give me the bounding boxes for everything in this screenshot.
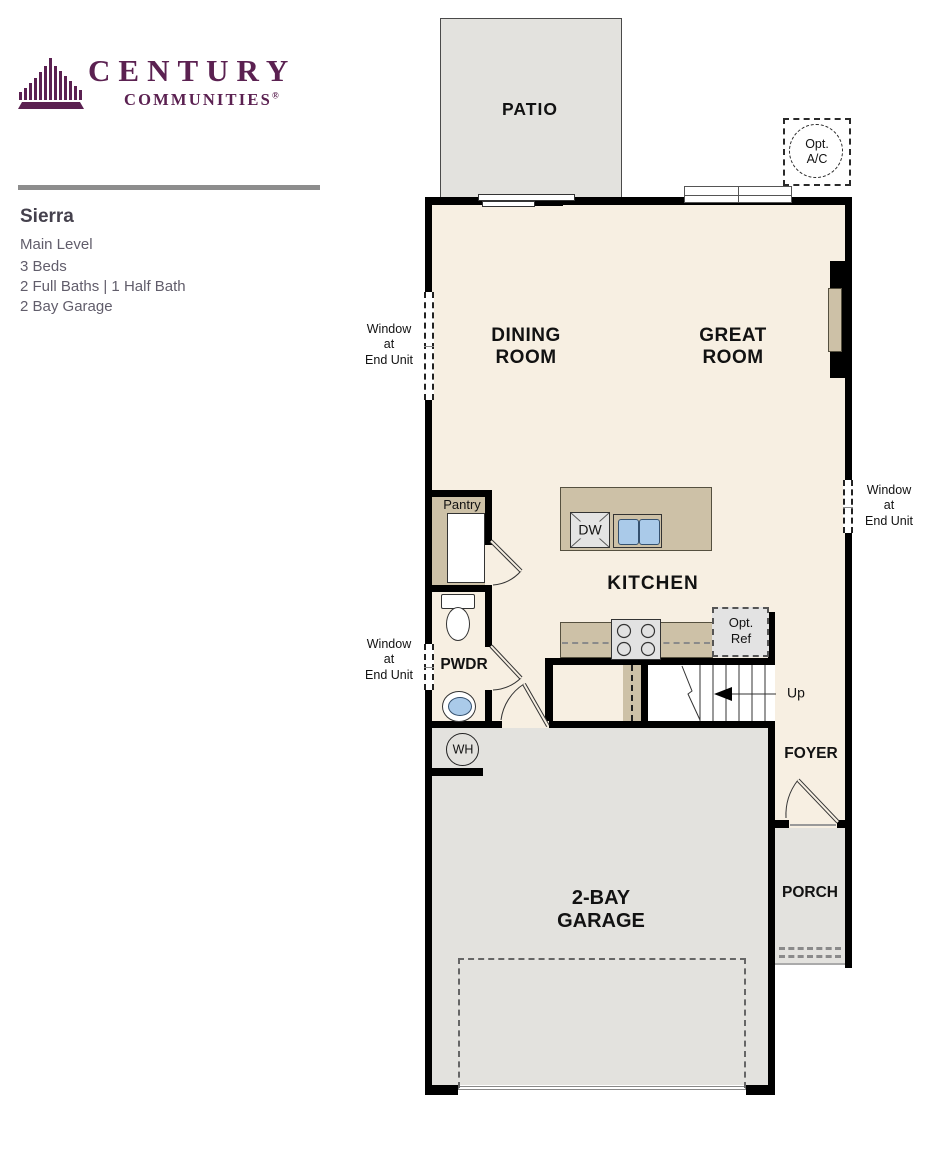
room-label-kitchen: KITCHEN: [607, 573, 698, 595]
porch-steps: [779, 955, 841, 958]
room-label-pwdr: PWDR: [440, 656, 487, 674]
kitchen-sink: [613, 514, 662, 548]
sink-basin: [639, 519, 660, 545]
fireplace-niche: [828, 288, 842, 352]
wall: [425, 768, 483, 776]
porch-edge: [775, 963, 845, 965]
stove: [611, 619, 661, 660]
plan-info-garage: 2 Bay Garage: [20, 298, 113, 315]
pantry-door: [487, 539, 531, 591]
opt-ac-label: Opt. A/C: [805, 137, 829, 168]
sliding-door: [478, 194, 575, 201]
up-label: Up: [787, 684, 805, 701]
plan-info-baths: 2 Full Baths | 1 Half Bath: [20, 278, 186, 295]
window-marker-end-unit: [843, 480, 853, 533]
stairs: [648, 665, 778, 721]
opt-ref-label: Opt. Ref: [729, 615, 754, 647]
pantry-shelves: [447, 513, 485, 583]
wall: [768, 728, 775, 1095]
plan-title: Sierra: [20, 206, 74, 228]
room-label-patio: PATIO: [502, 99, 558, 119]
logo-icon: [18, 56, 84, 112]
window-note: Window at End Unit: [365, 637, 413, 683]
room-label-great: GREAT ROOM: [699, 325, 767, 369]
garage-entry-door: [498, 678, 554, 728]
plan-info-level: Main Level: [20, 236, 93, 253]
room-label-foyer: FOYER: [784, 745, 837, 763]
wall: [553, 658, 775, 665]
dishwasher: DW: [570, 512, 610, 548]
divider: [18, 185, 320, 190]
sliding-door-track: [535, 203, 563, 206]
driveway-outline: [458, 958, 746, 1088]
window-marker-end-unit: [424, 292, 434, 400]
room-label-pantry: Pantry: [443, 497, 481, 513]
floorplan-sheet: CENTURY COMMUNITIES® Sierra Main Level 3…: [0, 0, 943, 1150]
century-communities-logo: CENTURY COMMUNITIES®: [0, 0, 340, 130]
window-note: Window at End Unit: [365, 322, 413, 368]
front-door: [784, 766, 844, 826]
wall: [428, 490, 492, 497]
room-label-garage: 2-BAY GARAGE: [557, 887, 645, 933]
cased-opening: [623, 665, 641, 721]
window-marker: [684, 186, 792, 203]
porch-steps: [779, 947, 841, 950]
sink-basin: [618, 519, 639, 545]
wall: [640, 658, 648, 728]
room-label-dining: DINING ROOM: [491, 325, 561, 369]
registered-mark: ®: [272, 91, 281, 101]
window-note: Window at End Unit: [865, 483, 913, 529]
room-label-porch: PORCH: [782, 884, 838, 902]
brand-word-communities: COMMUNITIES®: [124, 90, 281, 110]
powder-sink-basin: [448, 697, 472, 716]
wall: [425, 721, 775, 728]
brand-word-century: CENTURY: [88, 53, 296, 89]
wall: [428, 585, 492, 592]
sliding-door: [482, 201, 535, 207]
plan-info-beds: 3 Beds: [20, 258, 67, 275]
water-heater-label: WH: [453, 742, 474, 757]
window-marker-end-unit: [424, 644, 434, 690]
toilet-bowl: [446, 607, 470, 641]
dishwasher-label: DW: [577, 521, 602, 538]
